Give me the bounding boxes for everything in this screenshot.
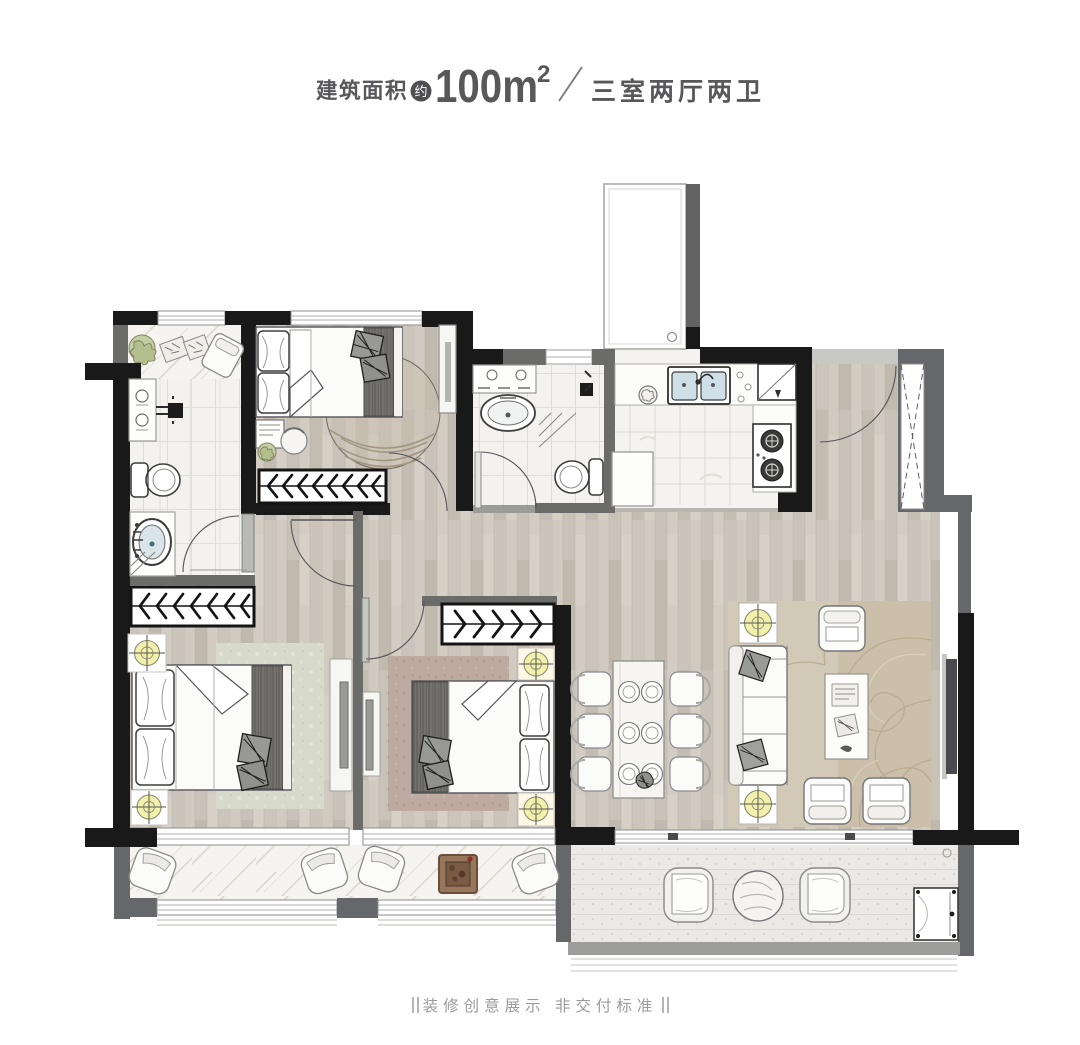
svg-text:建筑面积: 建筑面积 — [316, 78, 408, 103]
svg-text:装修创意展示 非交付标准: 装修创意展示 非交付标准 — [423, 996, 658, 1015]
svg-text:100m: 100m — [435, 60, 538, 112]
svg-text:约: 约 — [414, 84, 427, 99]
svg-text:2: 2 — [537, 61, 550, 88]
svg-text:三室两厅两卫: 三室两厅两卫 — [591, 77, 765, 106]
